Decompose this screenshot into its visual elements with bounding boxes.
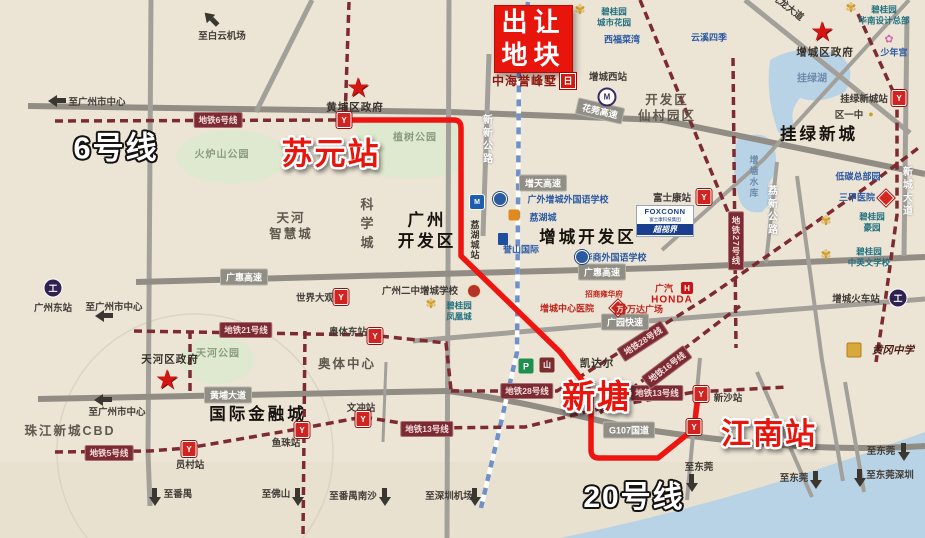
to-dongguan-arrow-1: [686, 474, 698, 492]
foxconn-company: 富士康科技集团: [640, 216, 690, 222]
to-foshan-arrow: [292, 488, 304, 506]
to-dongguan-arrow-3: [898, 443, 910, 461]
land-parcel-title: 出让 地块: [499, 6, 569, 72]
arrows-layer: [0, 0, 925, 538]
to-guangzhou-center-south-arrow: [94, 394, 112, 406]
line20-hero-label: 20号线: [583, 472, 684, 516]
map-canvas: 地铁6号线地铁21号线地铁5号线地铁13号线地铁13号线地铁16号线地铁28号线…: [0, 0, 925, 538]
to-baiyun-airport-arrow: [200, 8, 221, 29]
land-parcel-banner: 出让 地块: [494, 5, 573, 73]
foxconn-brand: FOXCONN: [637, 207, 693, 216]
developer-name: 中海誉峰墅: [492, 72, 557, 89]
suyuan-hero-label: 苏元站: [282, 129, 381, 174]
jiangnan-hero-label: 江南站: [721, 409, 817, 453]
line6-hero-label: 6号线: [73, 123, 158, 168]
zhonghai-logo-icon: 日: [560, 73, 576, 89]
to-panyu-nansha-arrow: [379, 488, 391, 506]
foxconn-product: 超视界: [637, 224, 693, 235]
to-shenzhen-airport-arrow: [469, 488, 481, 506]
foxconn-box: FOXCONN 富士康科技集团 超视界: [636, 205, 694, 237]
to-panyu-arrow: [149, 488, 161, 506]
to-dongguan-arrow-2: [810, 471, 822, 489]
to-guangzhou-center-mid-arrow: [95, 310, 113, 322]
xintang-hero-label: 新塘: [562, 370, 632, 418]
to-guangzhou-center-top-arrow: [48, 95, 66, 107]
to-dongguan-shenzhen-arrow: [854, 469, 866, 487]
developer-row: 中海誉峰墅 日: [492, 72, 594, 89]
